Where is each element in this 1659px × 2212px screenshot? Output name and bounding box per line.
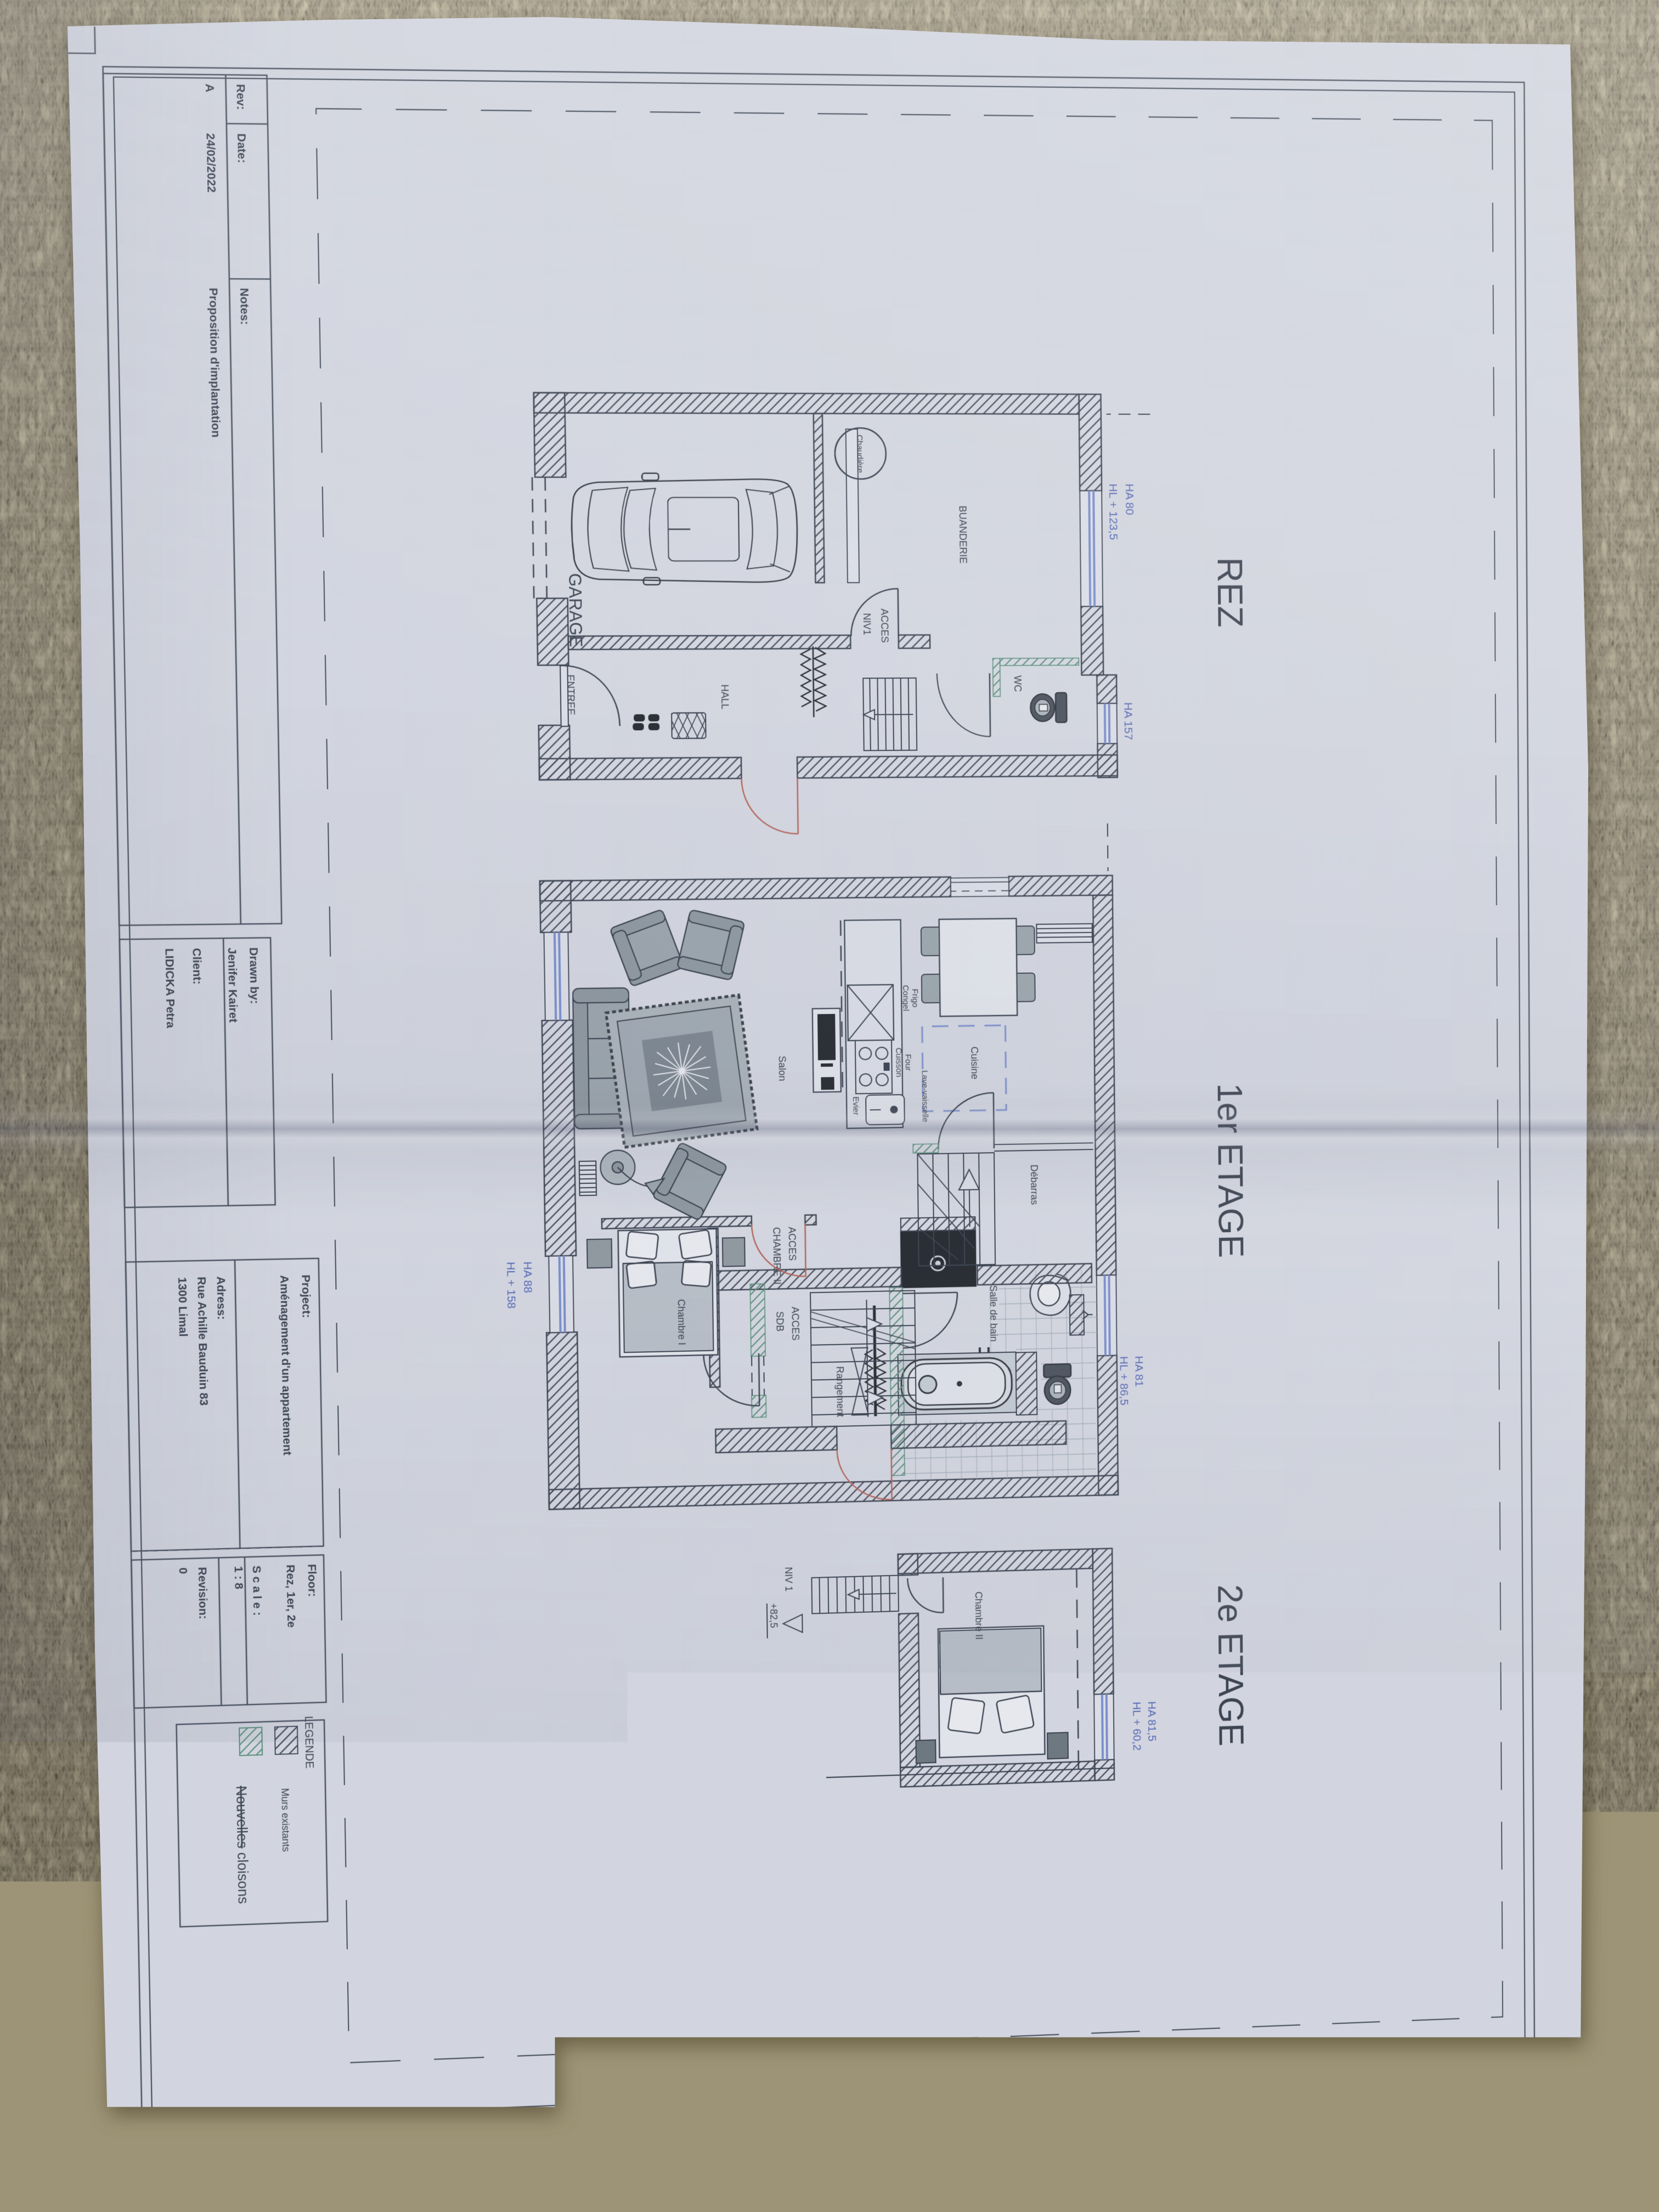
svg-text:24/02/2022: 24/02/2022 <box>204 133 218 193</box>
svg-text:Date:: Date: <box>235 133 249 163</box>
svg-text:ACCES: ACCES <box>786 1227 798 1261</box>
svg-text:Four: Four <box>903 1054 912 1071</box>
svg-text:+82,5: +82,5 <box>768 1603 779 1628</box>
svg-text:Murs existants: Murs existants <box>279 1788 291 1852</box>
svg-text:Client:: Client: <box>190 948 204 985</box>
svg-text:BUANDERIE: BUANDERIE <box>957 506 969 564</box>
svg-text:HL + 158: HL + 158 <box>504 1262 518 1309</box>
svg-text:HL + 60,2: HL + 60,2 <box>1130 1702 1143 1751</box>
svg-text:Rue Achille Bauduin 83: Rue Achille Bauduin 83 <box>195 1277 210 1406</box>
svg-text:Floor:: Floor: <box>305 1564 318 1597</box>
svg-text:GARAGE: GARAGE <box>565 573 585 647</box>
svg-text:NIV1: NIV1 <box>861 613 872 635</box>
svg-text:Rangement: Rangement <box>834 1366 846 1417</box>
svg-text:REZ: REZ <box>1210 557 1250 628</box>
svg-text:2e ETAGE: 2e ETAGE <box>1211 1584 1250 1747</box>
svg-text:0: 0 <box>176 1567 189 1574</box>
svg-text:LIDICKA Petra: LIDICKA Petra <box>162 948 177 1028</box>
svg-text:A: A <box>203 83 216 92</box>
svg-text:HA 80: HA 80 <box>1123 484 1136 515</box>
svg-text:Salle de bain: Salle de bain <box>988 1285 1000 1341</box>
svg-text:HALL: HALL <box>719 685 731 710</box>
svg-text:HA 157: HA 157 <box>1122 702 1135 740</box>
svg-text:NIV 1: NIV 1 <box>783 1567 794 1592</box>
svg-text:Drawn by:: Drawn by: <box>247 947 261 1004</box>
svg-text:Frigo: Frigo <box>910 989 919 1007</box>
svg-text:HL + 86,5: HL + 86,5 <box>1118 1356 1130 1406</box>
svg-text:Cuisson: Cuisson <box>894 1047 903 1077</box>
svg-text:ACCES: ACCES <box>789 1307 801 1341</box>
svg-text:Congel: Congel <box>901 985 910 1011</box>
svg-text:Rez, 1er, 2e: Rez, 1er, 2e <box>284 1565 297 1628</box>
svg-text:Rev:: Rev: <box>234 84 247 110</box>
svg-text:Adress:: Adress: <box>214 1276 228 1320</box>
svg-text:1 : 8: 1 : 8 <box>232 1566 245 1589</box>
svg-text:Notes:: Notes: <box>238 288 251 325</box>
svg-text:HA 81,5: HA 81,5 <box>1145 1701 1158 1742</box>
svg-text:SDB: SDB <box>774 1311 785 1331</box>
svg-text:HA 88: HA 88 <box>521 1261 534 1293</box>
svg-text:Jenifer Kairet: Jenifer Kairet <box>225 947 240 1023</box>
svg-text:Débarras: Débarras <box>1029 1165 1040 1205</box>
svg-text:Revision:: Revision: <box>196 1567 210 1620</box>
svg-text:ENTREE: ENTREE <box>565 675 577 715</box>
svg-text:Aménagement d'un appartement: Aménagement d'un appartement <box>278 1275 294 1455</box>
svg-text:Chaudière: Chaudière <box>855 435 865 473</box>
svg-text:1300 Limal: 1300 Limal <box>176 1277 190 1337</box>
svg-text:Proposition d'implantation: Proposition d'implantation <box>206 288 222 438</box>
svg-text:Nouvelles cloisons: Nouvelles cloisons <box>233 1786 252 1904</box>
svg-text:S c a l e :: S c a l e : <box>250 1565 264 1616</box>
svg-text:LEGENDE: LEGENDE <box>302 1716 315 1769</box>
svg-text:WC: WC <box>1012 675 1023 692</box>
svg-text:Chambre I: Chambre I <box>676 1299 687 1345</box>
svg-text:ACCES: ACCES <box>879 608 890 642</box>
svg-text:Project:: Project: <box>299 1274 313 1318</box>
svg-text:Chambre II: Chambre II <box>973 1592 985 1640</box>
svg-text:Salon: Salon <box>776 1056 788 1081</box>
svg-text:HL + 123,5: HL + 123,5 <box>1107 484 1120 540</box>
svg-text:HA 81: HA 81 <box>1132 1356 1145 1387</box>
svg-text:Cuisine: Cuisine <box>969 1046 980 1079</box>
